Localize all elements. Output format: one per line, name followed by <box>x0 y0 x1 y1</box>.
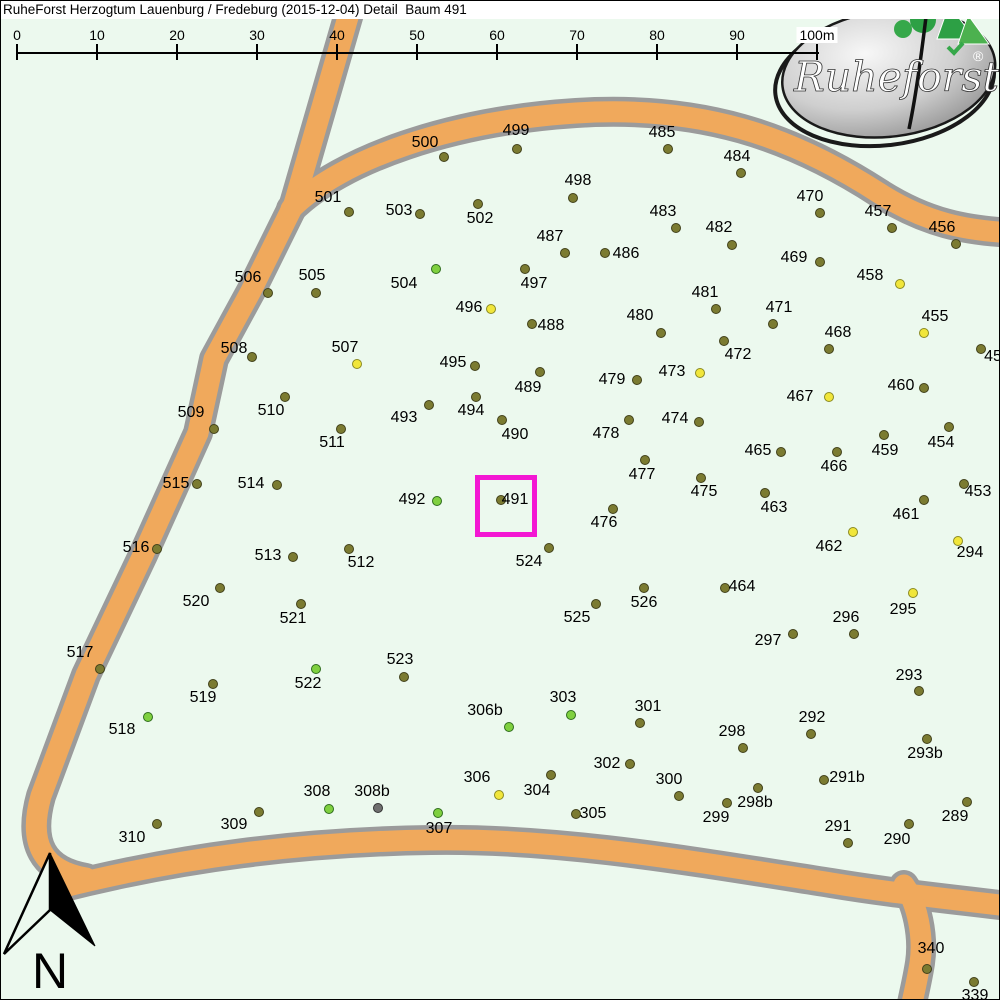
tree-label-302: 302 <box>594 755 621 773</box>
tree-dot-474[interactable] <box>694 417 704 427</box>
tree-dot-510[interactable] <box>280 392 290 402</box>
tree-label-492: 492 <box>399 491 426 509</box>
tree-label-457: 457 <box>865 203 892 221</box>
tree-label-463: 463 <box>761 499 788 517</box>
tree-label-293: 293 <box>896 667 923 685</box>
tree-label-496: 496 <box>456 299 483 317</box>
tree-label-308: 308 <box>304 783 331 801</box>
tree-label-513: 513 <box>255 547 282 565</box>
tree-dot-455[interactable] <box>919 328 929 338</box>
tree-label-507: 507 <box>332 339 359 357</box>
tree-dot-488[interactable] <box>527 319 537 329</box>
tree-label-299: 299 <box>703 809 730 827</box>
map-canvas: Ruheforst ® N 0102030405060708090100m 50… <box>0 0 1000 1000</box>
tree-dot-525[interactable] <box>591 599 601 609</box>
tree-label-307: 307 <box>426 820 453 838</box>
tree-label-511: 511 <box>319 434 345 452</box>
tree-dot-481[interactable] <box>711 304 721 314</box>
tree-label-289: 289 <box>942 808 969 826</box>
tree-label-473: 473 <box>659 363 686 381</box>
tree-dot-514[interactable] <box>272 480 282 490</box>
tree-dot-289[interactable] <box>962 797 972 807</box>
tree-label-467: 467 <box>787 388 814 406</box>
tree-dot-476[interactable] <box>608 504 618 514</box>
tree-label-304: 304 <box>524 782 551 800</box>
tree-dot-468[interactable] <box>824 344 834 354</box>
tree-label-502: 502 <box>467 210 494 228</box>
tree-label-306b: 306b <box>467 702 503 720</box>
tree-dot-486[interactable] <box>600 248 610 258</box>
tree-dot-290[interactable] <box>904 819 914 829</box>
tree-dot-340[interactable] <box>922 964 932 974</box>
tree-label-493: 493 <box>391 409 418 427</box>
tree-label-475: 475 <box>691 483 718 501</box>
tree-dot-494[interactable] <box>471 392 481 402</box>
tree-label-506: 506 <box>235 269 262 287</box>
tree-label-508: 508 <box>221 340 248 358</box>
tree-dot-462[interactable] <box>848 527 858 537</box>
tree-dot-502[interactable] <box>473 199 483 209</box>
tree-label-490: 490 <box>502 426 529 444</box>
tree-dot-461[interactable] <box>919 495 929 505</box>
tree-label-497: 497 <box>521 275 548 293</box>
tree-label-486: 486 <box>613 245 640 263</box>
tree-dot-466[interactable] <box>832 447 842 457</box>
tree-dot-306b[interactable] <box>504 722 514 732</box>
tree-label-298b: 298b <box>737 794 773 812</box>
tree-dot-504[interactable] <box>431 264 441 274</box>
tree-label-501: 501 <box>315 189 342 207</box>
tree-dot-339[interactable] <box>969 977 979 987</box>
tree-dot-521[interactable] <box>296 599 306 609</box>
tree-label-469: 469 <box>781 249 808 267</box>
tree-dot-516[interactable] <box>152 544 162 554</box>
tree-dot-513[interactable] <box>288 552 298 562</box>
tree-dot-473[interactable] <box>695 368 705 378</box>
tree-label-462: 462 <box>816 538 843 556</box>
tree-label-504: 504 <box>391 275 418 293</box>
tree-dot-485[interactable] <box>663 144 673 154</box>
tree-label-295: 295 <box>890 601 917 619</box>
tree-label-481: 481 <box>692 284 719 302</box>
tree-label-521: 521 <box>280 610 307 628</box>
tree-label-455: 455 <box>922 308 949 326</box>
tree-label-505: 505 <box>299 267 326 285</box>
tree-label-291b: 291b <box>829 769 865 787</box>
tree-label-308b: 308b <box>354 783 390 801</box>
tree-dot-477[interactable] <box>640 455 650 465</box>
tree-dot-463[interactable] <box>760 488 770 498</box>
tree-dot-524[interactable] <box>544 543 554 553</box>
tree-label-515: 515 <box>163 475 190 493</box>
tree-label-522: 522 <box>295 675 322 693</box>
tree-dot-501[interactable] <box>344 207 354 217</box>
tree-label-499: 499 <box>503 122 530 140</box>
tree-label-485: 485 <box>649 124 676 142</box>
tree-label-459: 459 <box>872 442 899 460</box>
tree-dot-500[interactable] <box>439 152 449 162</box>
tree-dot-484[interactable] <box>736 168 746 178</box>
tree-dot-306[interactable] <box>494 790 504 800</box>
tree-label-45: 45 <box>984 348 1000 366</box>
tree-dot-522[interactable] <box>311 664 321 674</box>
tree-label-476: 476 <box>591 514 618 532</box>
tree-dot-291[interactable] <box>843 838 853 848</box>
tree-label-292: 292 <box>799 709 826 727</box>
tree-label-461: 461 <box>893 506 920 524</box>
tree-dot-296[interactable] <box>849 629 859 639</box>
tree-label-478: 478 <box>593 425 620 443</box>
tree-dot-458[interactable] <box>895 279 905 289</box>
map-title: RuheForst Herzogtum Lauenburg / Fredebur… <box>1 2 467 17</box>
tree-label-510: 510 <box>258 402 285 420</box>
tree-label-310: 310 <box>119 829 146 847</box>
tree-dot-307[interactable] <box>433 808 443 818</box>
tree-label-296: 296 <box>833 609 860 627</box>
tree-label-514: 514 <box>238 475 265 493</box>
tree-dot-493[interactable] <box>424 400 434 410</box>
tree-dot-507[interactable] <box>352 359 362 369</box>
tree-dot-482[interactable] <box>727 240 737 250</box>
tree-dot-304[interactable] <box>546 770 556 780</box>
tree-dot-515[interactable] <box>192 479 202 489</box>
tree-dot-456[interactable] <box>951 239 961 249</box>
tree-dot-519[interactable] <box>208 679 218 689</box>
tree-dot-298[interactable] <box>738 743 748 753</box>
tree-label-458: 458 <box>857 267 884 285</box>
tree-label-306: 306 <box>464 769 491 787</box>
tree-dot-295[interactable] <box>908 588 918 598</box>
tree-label-519: 519 <box>190 689 217 707</box>
tree-label-500: 500 <box>412 134 439 152</box>
tree-dot-517[interactable] <box>95 664 105 674</box>
tree-dot-495[interactable] <box>470 361 480 371</box>
tree-dot-475[interactable] <box>696 473 706 483</box>
tree-dot-302[interactable] <box>625 759 635 769</box>
tree-dot-512[interactable] <box>344 544 354 554</box>
tree-label-480: 480 <box>627 307 654 325</box>
tree-dot-492[interactable] <box>432 496 442 506</box>
tree-dot-499[interactable] <box>512 144 522 154</box>
tree-dot-308[interactable] <box>324 804 334 814</box>
tree-dot-479[interactable] <box>632 375 642 385</box>
tree-label-290: 290 <box>884 831 911 849</box>
tree-label-340: 340 <box>918 940 945 958</box>
map-title-bar: RuheForst Herzogtum Lauenburg / Fredebur… <box>1 1 1000 19</box>
tree-label-525: 525 <box>564 609 591 627</box>
tree-dot-471[interactable] <box>768 319 778 329</box>
tree-dot-469[interactable] <box>815 257 825 267</box>
tree-dot-505[interactable] <box>311 288 321 298</box>
tree-dot-480[interactable] <box>656 328 666 338</box>
tree-dot-301[interactable] <box>635 718 645 728</box>
tree-dot-298b[interactable] <box>753 783 763 793</box>
tree-dot-303[interactable] <box>566 710 576 720</box>
tree-dot-308b[interactable] <box>373 803 383 813</box>
tree-label-294: 294 <box>957 544 984 562</box>
highlight-box-tree-491 <box>475 475 537 537</box>
tree-label-456: 456 <box>929 219 956 237</box>
tree-dot-523[interactable] <box>399 672 409 682</box>
tree-label-524: 524 <box>516 553 543 571</box>
tree-dot-457[interactable] <box>887 223 897 233</box>
tree-dot-299[interactable] <box>722 798 732 808</box>
tree-dot-509[interactable] <box>209 424 219 434</box>
tree-label-303: 303 <box>550 689 577 707</box>
tree-label-339: 339 <box>962 987 989 1000</box>
tree-label-494: 494 <box>458 402 485 420</box>
tree-label-489: 489 <box>515 379 542 397</box>
tree-dot-470[interactable] <box>815 208 825 218</box>
tree-label-454: 454 <box>928 434 955 452</box>
tree-label-305: 305 <box>580 805 607 823</box>
tree-dot-465[interactable] <box>776 447 786 457</box>
tree-dot-293[interactable] <box>914 686 924 696</box>
tree-dot-489[interactable] <box>535 367 545 377</box>
tree-dot-503[interactable] <box>415 209 425 219</box>
tree-label-291: 291 <box>825 818 852 836</box>
tree-label-474: 474 <box>662 410 689 428</box>
tree-dot-310[interactable] <box>152 819 162 829</box>
tree-label-470: 470 <box>797 188 824 206</box>
tree-dot-508[interactable] <box>247 352 257 362</box>
tree-label-509: 509 <box>178 404 205 422</box>
tree-label-503: 503 <box>386 202 413 220</box>
tree-dot-293b[interactable] <box>922 734 932 744</box>
tree-label-472: 472 <box>725 346 752 364</box>
tree-dot-511[interactable] <box>336 424 346 434</box>
tree-dot-490[interactable] <box>497 415 507 425</box>
tree-dot-472[interactable] <box>719 336 729 346</box>
tree-label-495: 495 <box>440 354 467 372</box>
tree-label-460: 460 <box>888 377 915 395</box>
tree-dot-498[interactable] <box>568 193 578 203</box>
tree-label-471: 471 <box>766 299 793 317</box>
tree-label-300: 300 <box>656 771 683 789</box>
tree-label-468: 468 <box>825 324 852 342</box>
tree-label-297: 297 <box>755 632 782 650</box>
tree-label-487: 487 <box>537 228 564 246</box>
tree-dot-292[interactable] <box>806 729 816 739</box>
tree-label-482: 482 <box>706 219 733 237</box>
tree-label-523: 523 <box>387 651 414 669</box>
tree-dot-506[interactable] <box>263 288 273 298</box>
tree-label-479: 479 <box>599 371 626 389</box>
tree-label-466: 466 <box>821 458 848 476</box>
tree-dot-459[interactable] <box>879 430 889 440</box>
tree-dot-297[interactable] <box>788 629 798 639</box>
tree-label-301: 301 <box>635 698 662 716</box>
tree-dot-291b[interactable] <box>819 775 829 785</box>
tree-dot-520[interactable] <box>215 583 225 593</box>
tree-label-517: 517 <box>67 644 94 662</box>
tree-dot-467[interactable] <box>824 392 834 402</box>
tree-label-484: 484 <box>724 148 751 166</box>
tree-dot-309[interactable] <box>254 807 264 817</box>
tree-dot-487[interactable] <box>560 248 570 258</box>
tree-dot-454[interactable] <box>944 422 954 432</box>
tree-dot-526[interactable] <box>639 583 649 593</box>
tree-label-520: 520 <box>183 593 210 611</box>
tree-label-298: 298 <box>719 723 746 741</box>
tree-label-464: 464 <box>729 578 756 596</box>
tree-dot-518[interactable] <box>143 712 153 722</box>
tree-label-477: 477 <box>629 466 656 484</box>
tree-dot-497[interactable] <box>520 264 530 274</box>
tree-dot-300[interactable] <box>674 791 684 801</box>
tree-label-512: 512 <box>348 554 375 572</box>
tree-label-483: 483 <box>650 203 677 221</box>
tree-label-526: 526 <box>631 594 658 612</box>
tree-dot-460[interactable] <box>919 383 929 393</box>
tree-label-309: 309 <box>221 816 248 834</box>
tree-label-488: 488 <box>538 317 565 335</box>
tree-label-518: 518 <box>109 721 136 739</box>
tree-dot-478[interactable] <box>624 415 634 425</box>
tree-label-498: 498 <box>565 172 592 190</box>
tree-label-453: 453 <box>965 483 992 501</box>
tree-label-465: 465 <box>745 442 772 460</box>
tree-label-293b: 293b <box>907 745 943 763</box>
tree-label-516: 516 <box>123 539 150 557</box>
tree-dot-483[interactable] <box>671 223 681 233</box>
tree-dot-496[interactable] <box>486 304 496 314</box>
